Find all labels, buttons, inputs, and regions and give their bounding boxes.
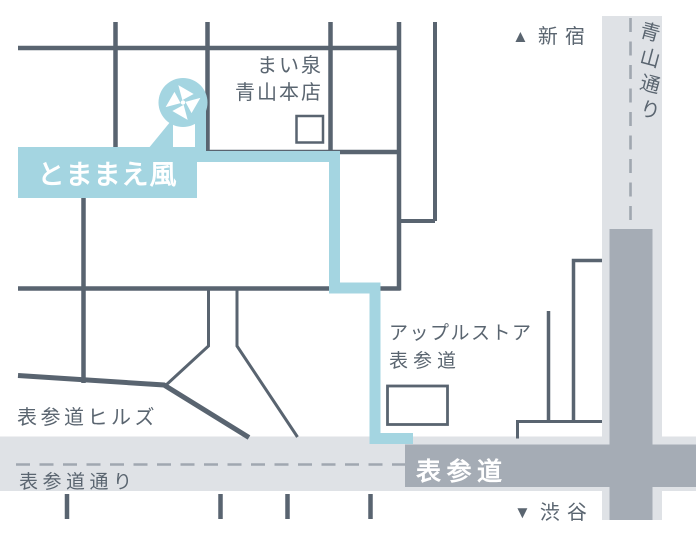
destination-pin: [159, 78, 208, 127]
omotesando-hills-label: 表参道ヒルズ: [17, 401, 158, 430]
destination-callout: とままえ風: [18, 147, 197, 198]
apple-store-label-line1: アップルストア: [389, 320, 533, 348]
aoyama-dori-dark-band: [610, 229, 653, 520]
access-map: まい泉 青山本店 とままえ風 ▲新宿 青山通り アップルストア 表参道 表参道ヒ…: [0, 0, 696, 542]
destination-callout-label: とままえ風: [38, 153, 178, 192]
block-outline-south: [518, 422, 603, 439]
route-path: [201, 107, 414, 439]
omotesando-dori-label: 表参道通り: [19, 467, 137, 494]
direction-south-label: ▼渋谷: [514, 496, 594, 525]
building-outlines: [165, 116, 602, 439]
apple-store-building: [388, 386, 448, 425]
road-stubs-south: [67, 494, 371, 519]
aoyama-dori-label: 青山通り: [636, 20, 664, 124]
north-arrow-icon: ▲: [512, 27, 529, 46]
hills-outline-right: [237, 289, 298, 437]
apple-store-label: アップルストア 表参道: [389, 320, 533, 376]
map-canvas: [0, 0, 696, 542]
shinjuku-label: 新宿: [538, 26, 592, 48]
maisen-label-line1: まい泉: [235, 53, 323, 80]
shibuya-label: 渋谷: [540, 502, 594, 524]
direction-north-label: ▲新宿: [512, 20, 592, 49]
block-line-2: [574, 261, 603, 421]
maisen-label: まい泉 青山本店: [235, 53, 323, 107]
hills-outline-left: [165, 289, 209, 386]
maisen-label-line2: 青山本店: [235, 80, 323, 107]
callout-tail: [148, 119, 173, 150]
apple-store-label-line2: 表参道: [389, 348, 533, 376]
maisen-building: [297, 116, 324, 143]
omotesando-avenue-label: 表参道: [416, 452, 508, 488]
south-arrow-icon: ▼: [514, 503, 531, 522]
